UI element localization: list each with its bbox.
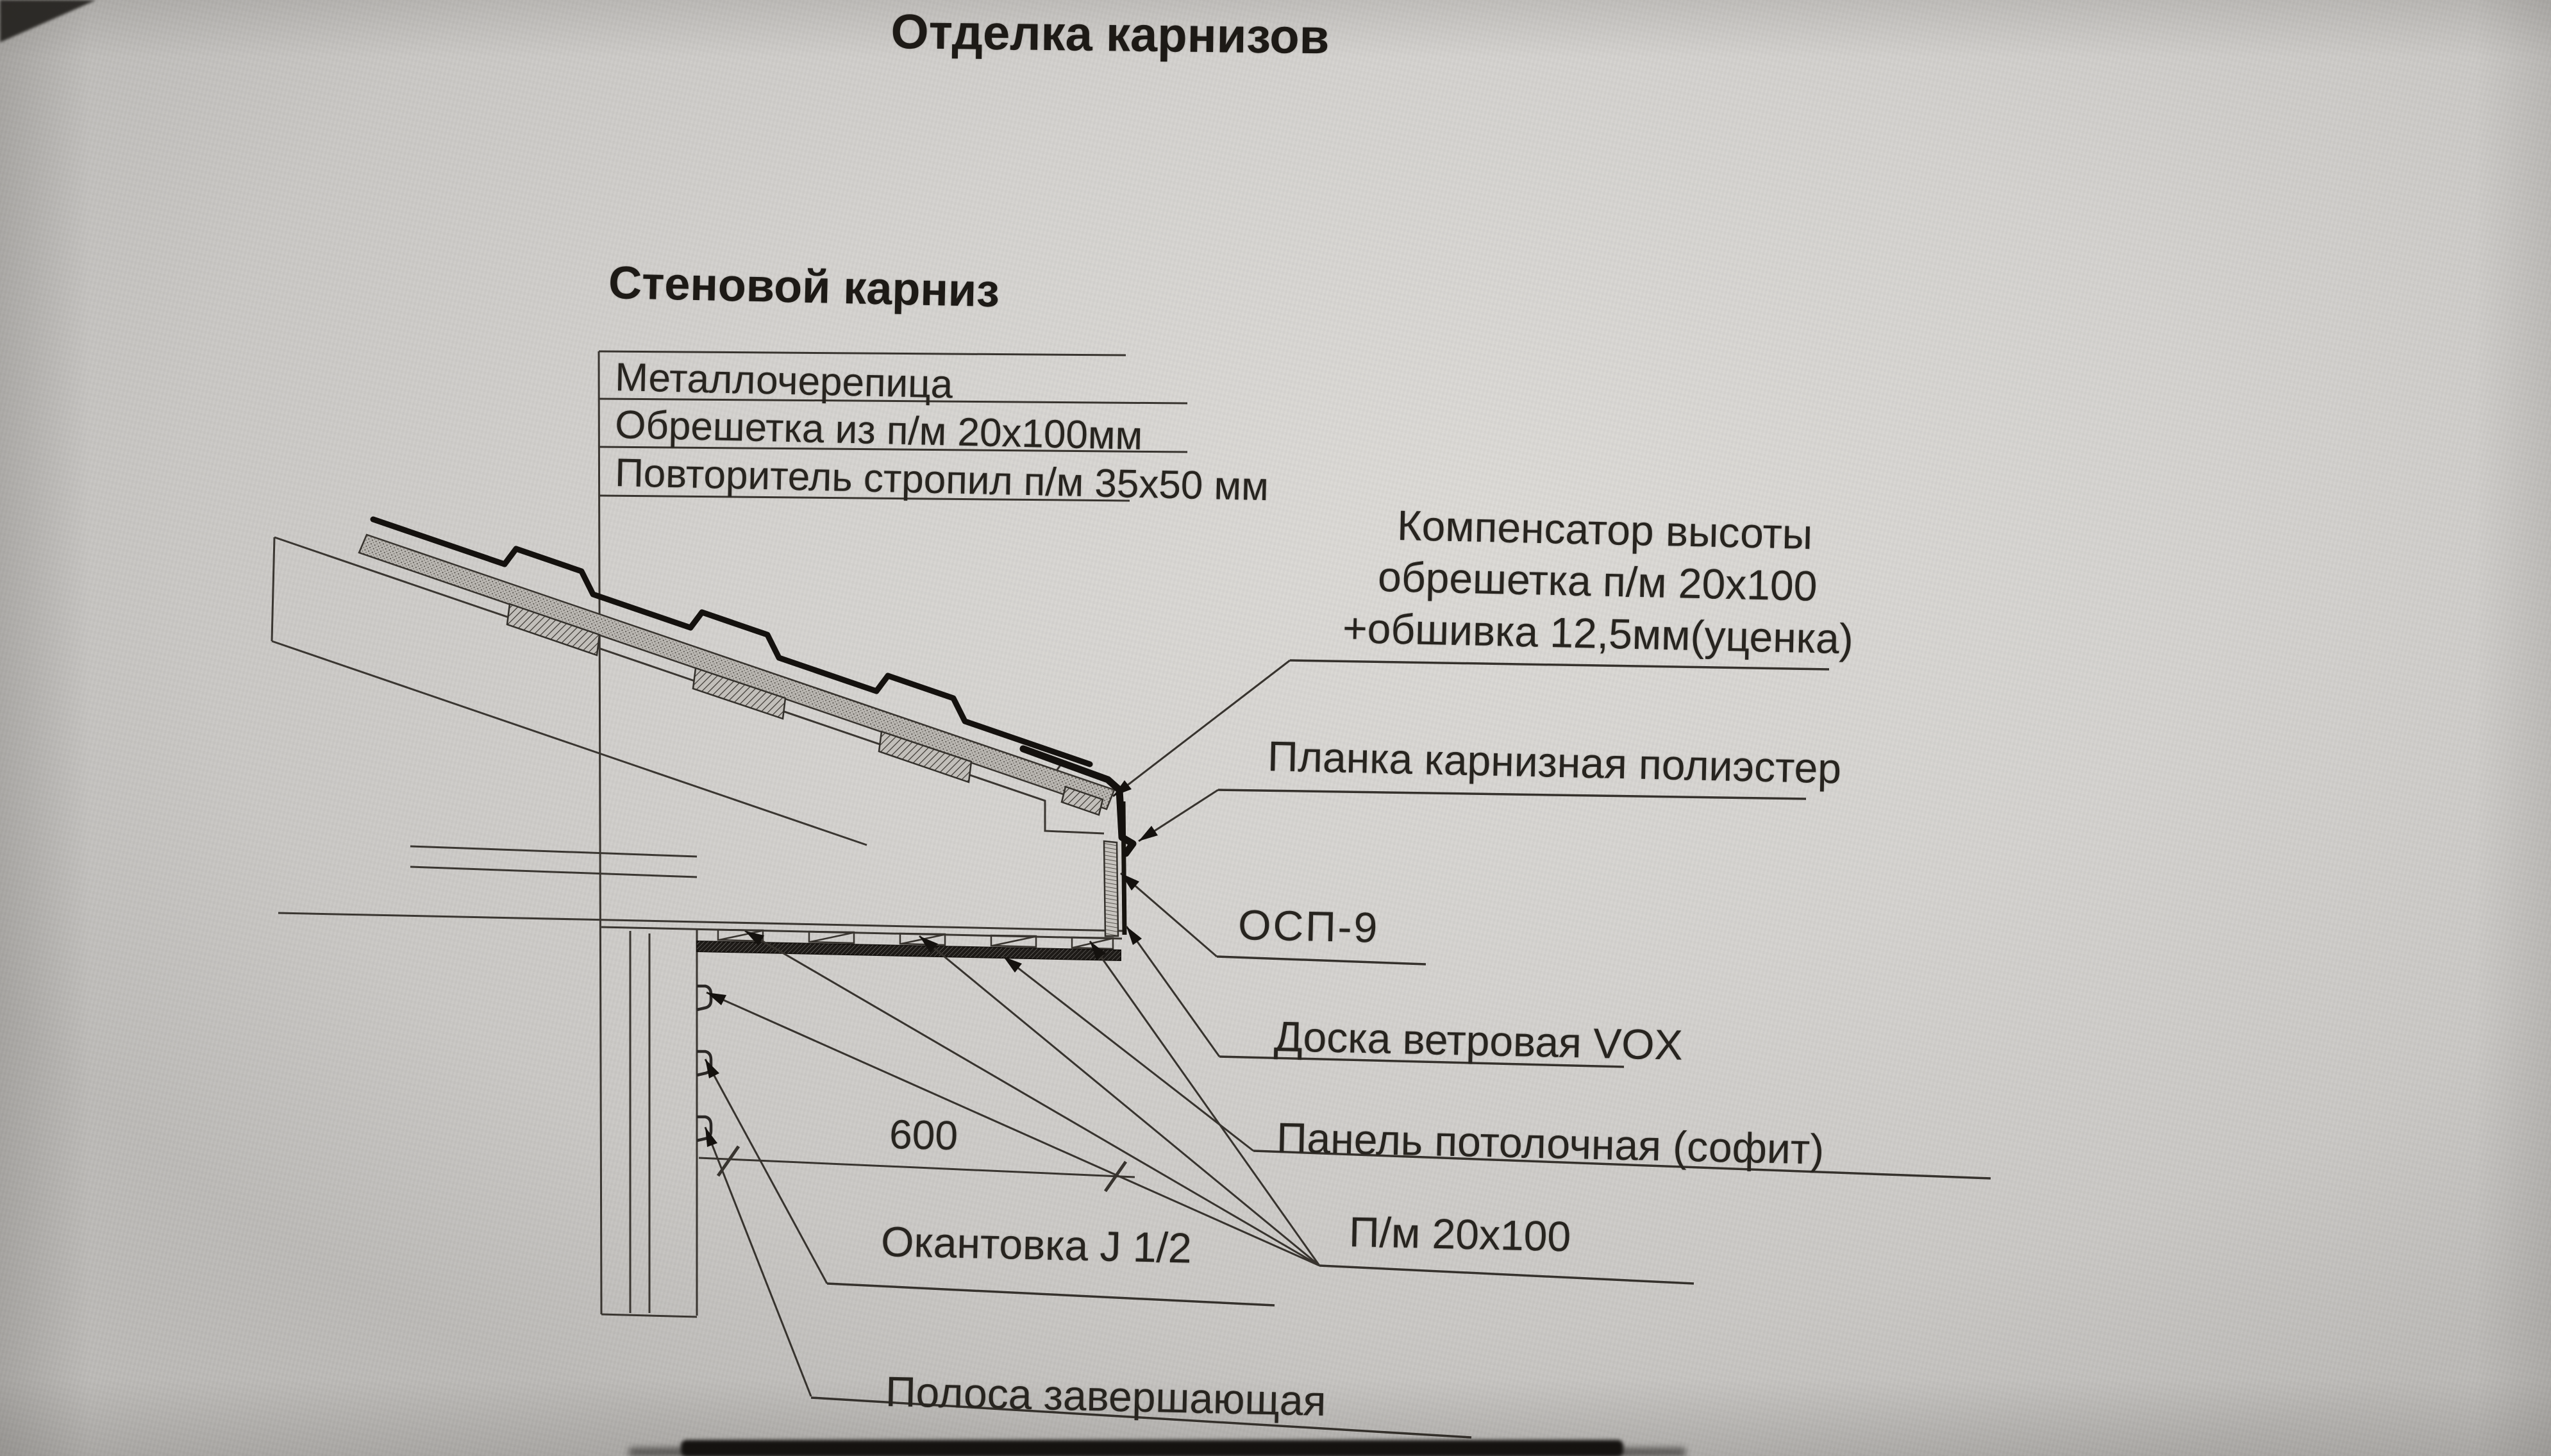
- roof-battens: [507, 604, 1103, 815]
- page-title: Отделка карнизов: [891, 6, 1330, 63]
- osb-strip: [1104, 841, 1118, 936]
- callout-compensator-line1: Компенсатор высоты: [1396, 503, 1812, 556]
- stack-label-metal-tile: Металлочерепица: [615, 356, 953, 406]
- dimension-600-value: 600: [889, 1113, 958, 1158]
- photo-bottom-edge: [681, 1440, 1623, 1456]
- callout-compensator-line2: обрешетка п/м 20х100: [1377, 555, 1818, 608]
- callout-finishing-strip: Полоса завершающая: [885, 1369, 1326, 1423]
- metal-tile-profile: [373, 519, 1090, 764]
- callout-j-trim: Окантовка J 1/2: [880, 1219, 1192, 1271]
- section-subtitle: Стеновой карниз: [608, 259, 999, 316]
- callout-osb: ОСП-9: [1237, 903, 1380, 950]
- cornice-detail-drawing: [0, 0, 2551, 1456]
- photographed-drawing-page: Отделка карнизов Стеновой карниз Металло…: [0, 0, 2551, 1456]
- rafter-outline: [272, 537, 1104, 845]
- callout-wind-board: Доска ветровая VOX: [1273, 1014, 1683, 1067]
- sheathing-band: [359, 535, 1114, 809]
- callout-lumber: П/м 20х100: [1348, 1210, 1571, 1259]
